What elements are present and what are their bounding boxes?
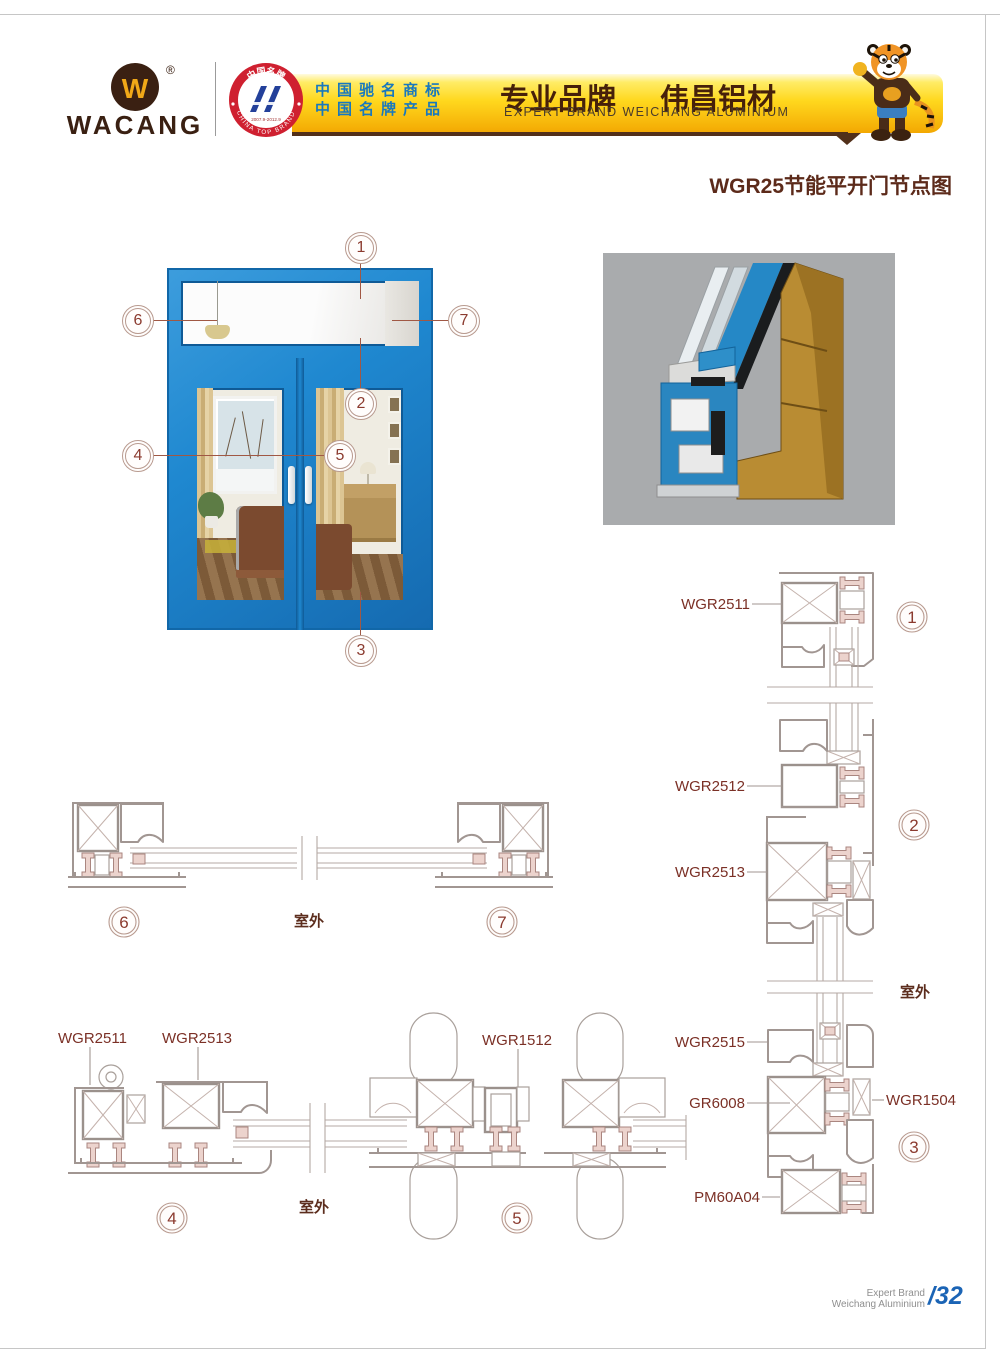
- armchair: [316, 524, 352, 590]
- page-title: WGR25节能平开门节点图: [600, 170, 952, 200]
- banner-claims: 中国驰名商标 中国名牌产品: [315, 81, 447, 119]
- node-circle-7: 7: [487, 907, 517, 937]
- horizontal-section-4-5: WGR2511 WGR2513 4 室外: [45, 1005, 705, 1250]
- logo-w-glyph: W: [122, 73, 149, 104]
- svg-text:2: 2: [909, 816, 918, 835]
- label-outdoor-67: 室外: [294, 912, 324, 930]
- table-lamp: [360, 462, 376, 474]
- registered-mark: ®: [166, 63, 175, 77]
- pendant-lamp: [205, 325, 230, 339]
- label-wgr1512: WGR1512: [482, 1032, 552, 1049]
- node-circle-2: 2: [899, 810, 929, 840]
- picture-frame: [388, 396, 401, 413]
- svg-text:4: 4: [167, 1209, 176, 1228]
- label-wgr2513: WGR2513: [675, 864, 745, 881]
- snow: [216, 469, 274, 491]
- node-circle-6: 6: [109, 907, 139, 937]
- callout-6: 6: [122, 305, 154, 337]
- svg-text:6: 6: [119, 913, 128, 932]
- footer-line-1: Expert Brand: [700, 1288, 925, 1299]
- sofa: [236, 506, 284, 578]
- door-photo: [167, 268, 433, 630]
- leader-line-7: [392, 320, 448, 321]
- callout-1: 1: [345, 232, 377, 264]
- section-drawing-4: WGR2511 WGR2513 4 室外: [58, 1030, 329, 1233]
- banner-claim-1: 中国驰名商标: [315, 81, 447, 100]
- node-circle-3: 3: [899, 1132, 929, 1162]
- page-border-right: [985, 14, 986, 1348]
- profile-3d-render: [603, 253, 895, 525]
- horizontal-section-6-7: 6 7 室外: [55, 790, 565, 940]
- label-wgr2512: WGR2512: [675, 778, 745, 795]
- transom-glass: [181, 281, 419, 346]
- catalog-page: W ® WACANG 中国驰名商标 中国名牌产品 专业品牌伟昌铝材 EXPERT…: [0, 0, 1000, 1366]
- leader-line-2: [360, 338, 361, 388]
- svg-text:3: 3: [909, 1138, 918, 1157]
- label-outdoor-right: 室外: [900, 983, 930, 1001]
- footer-line-2: Weichang Aluminium: [700, 1299, 925, 1310]
- leader-line-6: [152, 320, 217, 321]
- glass-strip-6-7: [130, 836, 487, 880]
- page-border-bottom: [0, 1348, 986, 1349]
- section-drawing-1: WGR2511 1: [681, 573, 927, 703]
- brand-wordmark: WACANG: [64, 110, 206, 141]
- interior-window: [213, 396, 277, 494]
- door-handle-left: [288, 466, 295, 504]
- leader-line-3: [360, 592, 361, 635]
- interior-wall: [385, 281, 419, 346]
- badge-years: 2007.9-2012.9: [251, 117, 281, 122]
- door-handle-right: [305, 466, 312, 504]
- wacang-logo-icon: W ®: [108, 60, 178, 115]
- plant-pot: [205, 516, 218, 528]
- tiger-mascot-icon: [843, 42, 943, 144]
- leader-line-4-5: [152, 455, 324, 456]
- footer-page-number: /32: [928, 1282, 963, 1311]
- svg-text:5: 5: [512, 1209, 521, 1228]
- svg-text:7: 7: [497, 913, 506, 932]
- china-top-brand-badge: 中国名牌 CHINA TOP BRAND 2007.9-2012.9: [227, 61, 305, 139]
- table-lamp-base: [367, 474, 369, 484]
- label-wgr2511: WGR2511: [681, 596, 750, 613]
- page-border-top: [0, 14, 1000, 15]
- frame-profile-6: [69, 803, 185, 887]
- picture-frame: [388, 448, 401, 465]
- label-wgr2511-b: WGR2511: [58, 1030, 127, 1047]
- center-mullion: [296, 358, 304, 630]
- label-outdoor-4: 室外: [299, 1198, 329, 1216]
- label-wgr2513-b: WGR2513: [162, 1030, 232, 1047]
- callout-5: 5: [324, 440, 356, 472]
- section-drawing-5: WGR1512: [370, 1013, 665, 1239]
- banner-shadow: [292, 132, 848, 136]
- leader-line-1: [360, 262, 361, 299]
- left-door-glass: [197, 388, 284, 600]
- node-circle-5: 5: [502, 1203, 532, 1233]
- section-drawing-2: WGR2512 WGR2513 2 室外: [675, 703, 930, 1001]
- node-circle-4: 4: [157, 1203, 187, 1233]
- callout-3: 3: [345, 635, 377, 667]
- label-wgr1504: WGR1504: [886, 1092, 956, 1109]
- header-divider: [215, 62, 216, 136]
- section-drawing-3: WGR2515 GR6008 WGR1504 3: [675, 993, 956, 1213]
- callout-2: 2: [345, 388, 377, 420]
- banner-slogan-en: EXPERT BRAND WEICHANG ALUMINIUM: [504, 105, 789, 119]
- node-circle-1: 1: [897, 602, 927, 632]
- callout-7: 7: [448, 305, 480, 337]
- callout-4: 4: [122, 440, 154, 472]
- svg-text:1: 1: [907, 608, 916, 627]
- pendant-cord: [217, 281, 218, 325]
- banner-claim-2: 中国名牌产品: [315, 100, 447, 119]
- footer-brand-text: Expert Brand Weichang Aluminium: [700, 1288, 925, 1310]
- picture-frame: [388, 422, 401, 439]
